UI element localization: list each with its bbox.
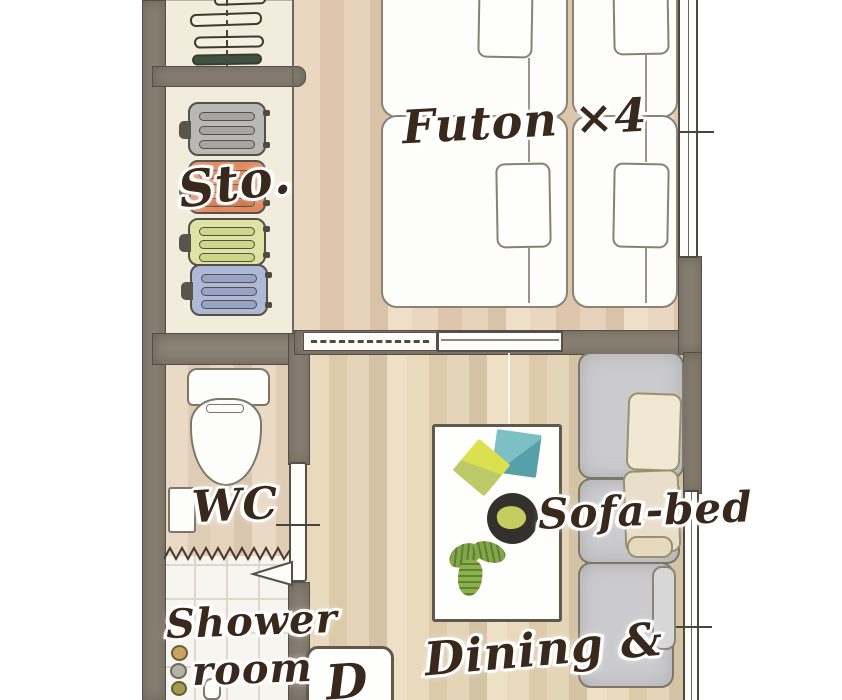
sliding-door-panel-line — [441, 339, 559, 341]
food-bowl — [487, 493, 538, 544]
pillow — [612, 163, 669, 249]
pillow — [477, 0, 533, 58]
closet-rod — [226, 0, 228, 66]
sofa-cushion-cream — [626, 392, 683, 472]
shower-knob — [170, 663, 187, 679]
shower-knob — [171, 681, 187, 696]
label-storage: Sto. — [175, 150, 294, 215]
window-top-right — [678, 0, 698, 258]
floor-plan: Futon ×4 Sto. WC Shower room Sofa-bed Di… — [0, 0, 842, 700]
storage-bottom-wall — [152, 333, 310, 365]
bathroom-door-tick — [276, 524, 320, 526]
closet-right-wall-line — [292, 0, 294, 333]
label-shower: Shower — [165, 599, 338, 645]
pillow — [495, 163, 551, 249]
door-swing-arrow — [250, 560, 296, 588]
right-wall-mid — [683, 352, 702, 494]
sliding-door-guide-line — [508, 353, 510, 425]
toilet-seat-hinge — [206, 404, 244, 413]
label-sofa-bed: Sofa-bed — [537, 486, 753, 535]
futon-crease — [645, 248, 647, 303]
label-wc: WC — [191, 482, 280, 530]
label-shower-room: room — [191, 648, 313, 692]
label-d-tile: D — [324, 657, 370, 700]
bowl-food — [496, 504, 528, 531]
window-glass-line — [688, 0, 689, 256]
label-futon-room: Futon ×4 — [401, 92, 648, 151]
pillow — [612, 0, 669, 55]
hanger-bar — [194, 35, 264, 48]
sofa-pillow-small — [627, 536, 673, 558]
suitcase-blue — [190, 264, 268, 316]
suitcase-gray — [188, 102, 266, 156]
sliding-door-track-dashes — [311, 340, 429, 343]
futon-crease — [528, 248, 530, 303]
sliding-door-panel — [437, 331, 563, 352]
plant — [446, 540, 508, 600]
suitcase-green — [188, 218, 266, 266]
right-wall-upper — [678, 256, 702, 355]
closet-divider-wall — [152, 66, 306, 87]
